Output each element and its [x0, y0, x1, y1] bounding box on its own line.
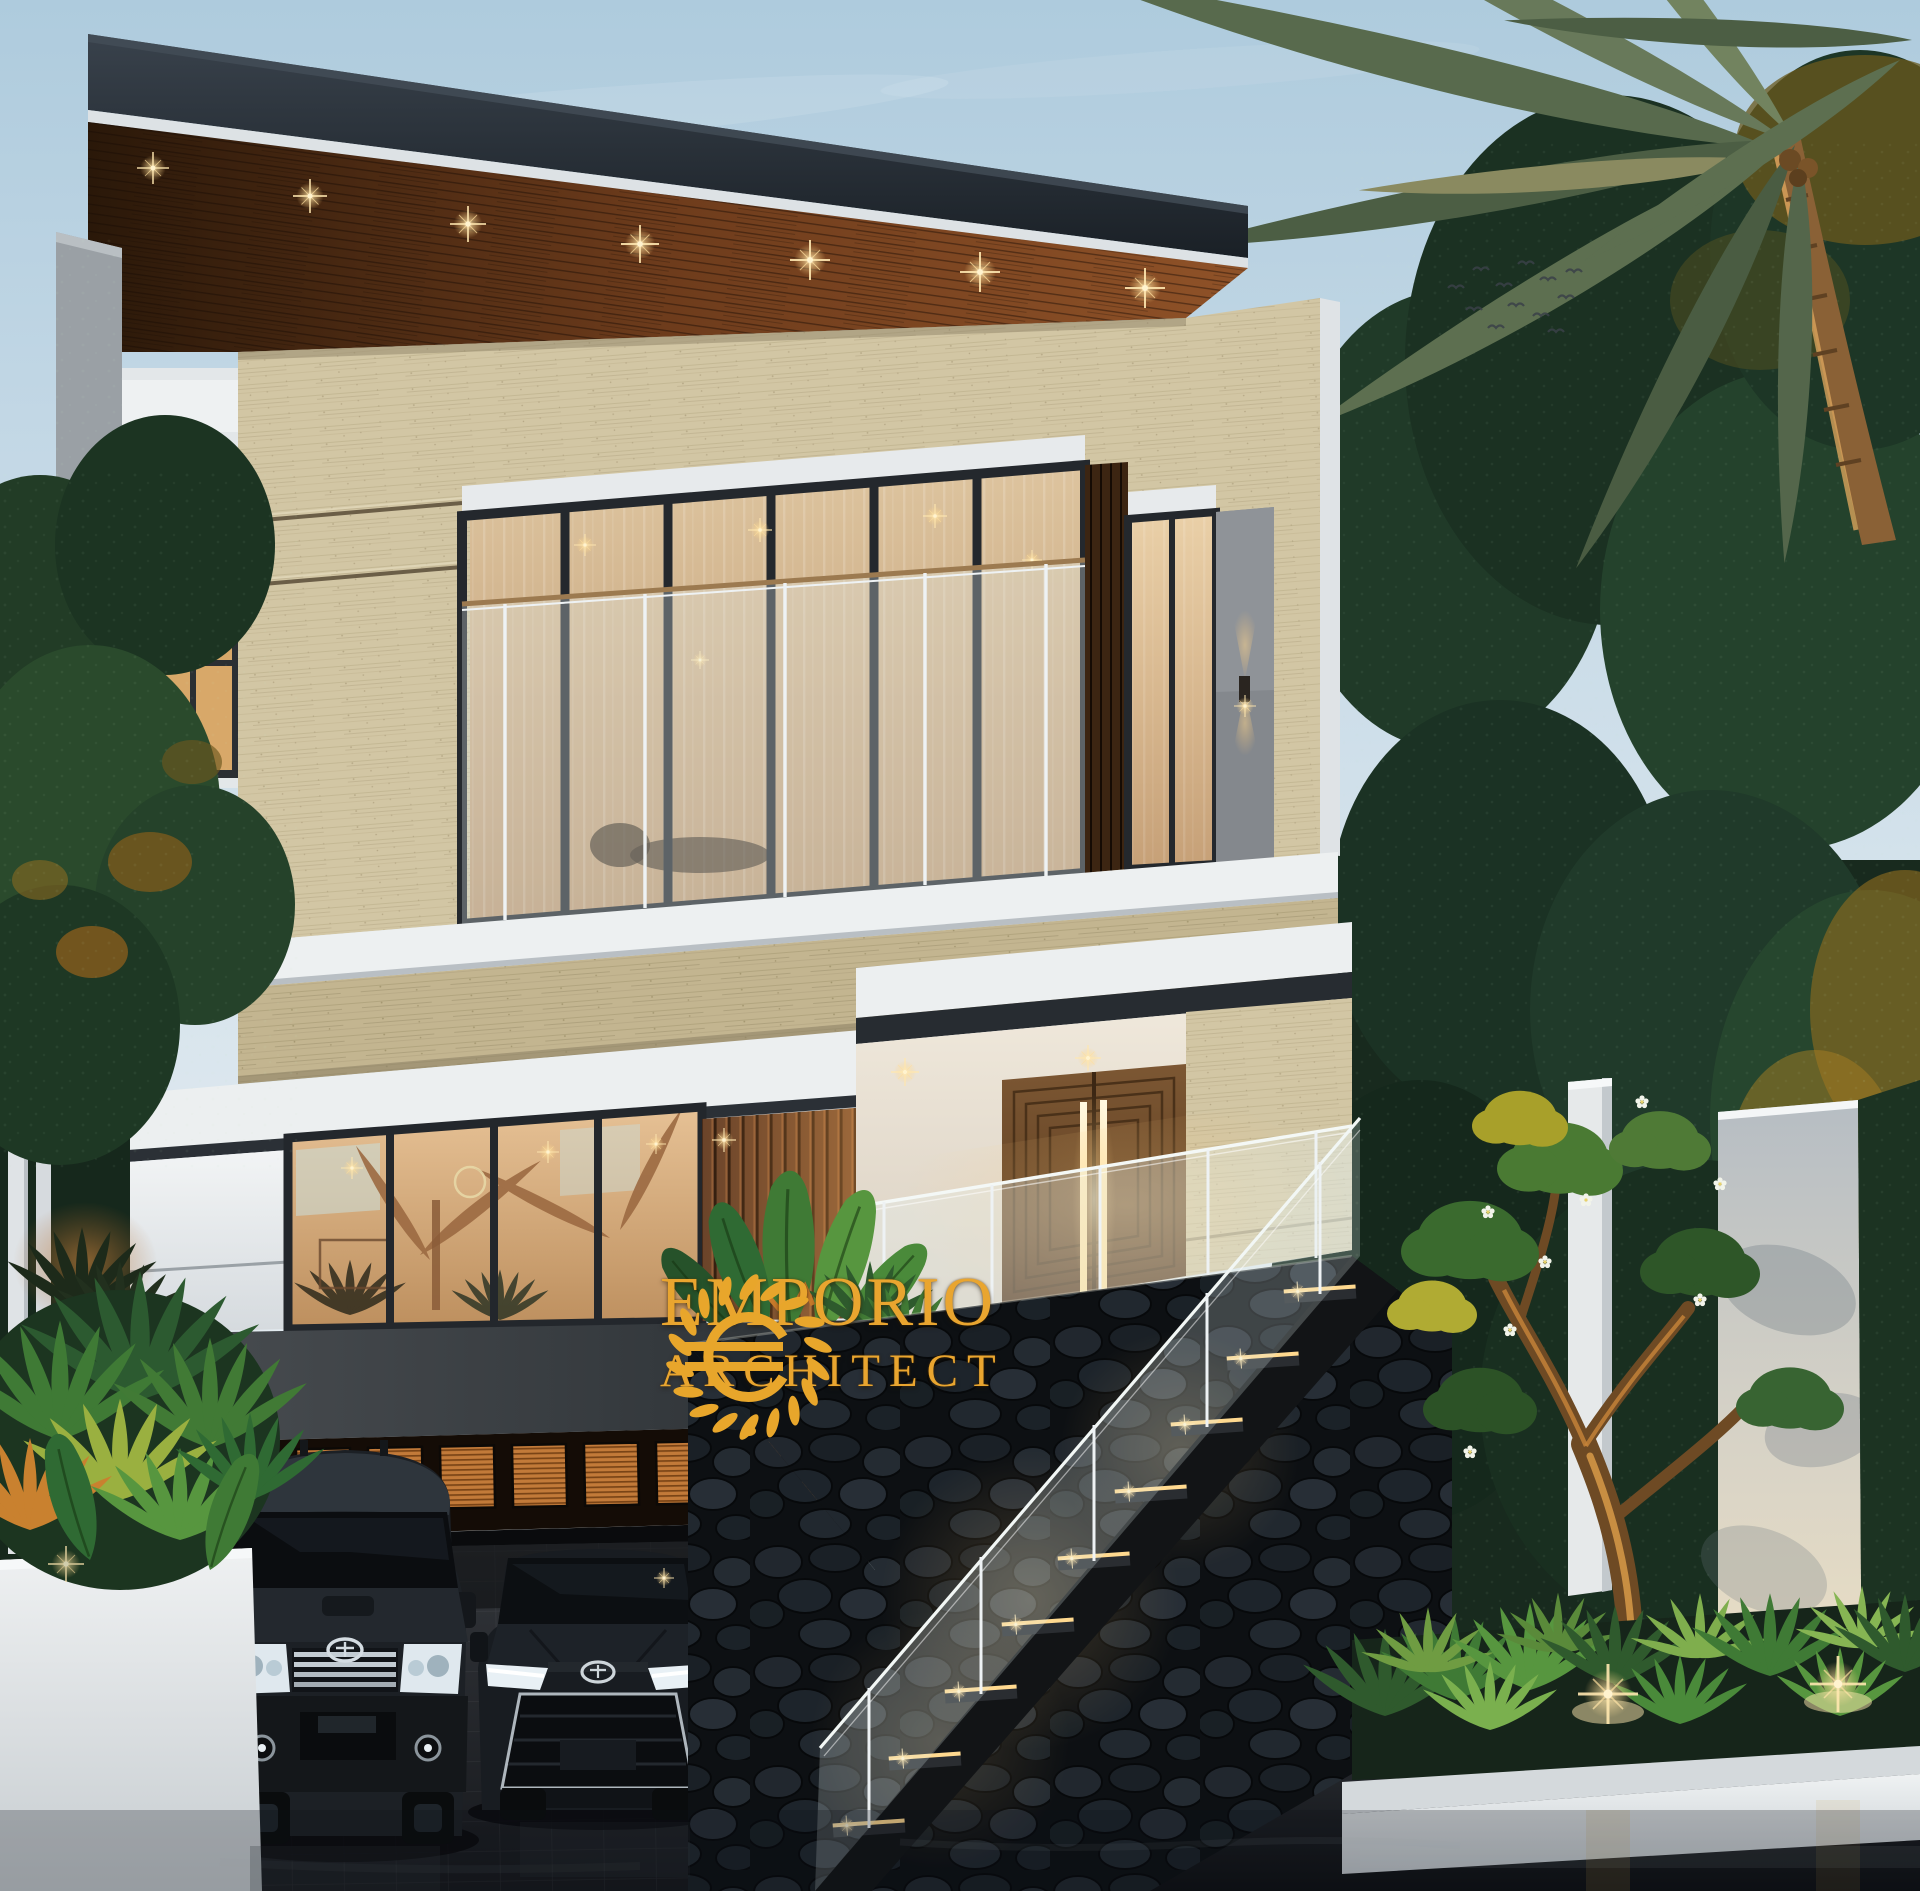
suv-grille — [228, 1639, 462, 1694]
living-window — [288, 1107, 702, 1329]
scene-art — [0, 0, 1920, 1891]
balcony-railing — [462, 560, 1085, 924]
architectural-render-scene: EMPORIO ARCHITECT — [0, 0, 1920, 1891]
balcony — [462, 435, 1085, 924]
watermark: EMPORIO ARCHITECT — [660, 1268, 1005, 1395]
left-tree — [0, 415, 300, 1170]
euro-monogram — [708, 1317, 783, 1397]
wet-reflections — [0, 1800, 1920, 1891]
laurel-wreath-icon — [660, 1268, 838, 1446]
